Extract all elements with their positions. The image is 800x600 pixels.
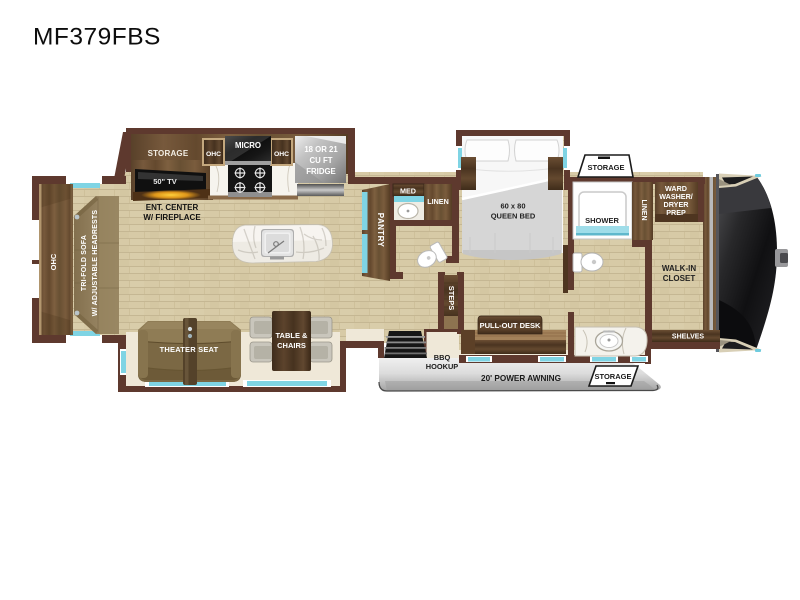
svg-text:50" TV: 50" TV xyxy=(153,177,177,186)
svg-text:BBQ: BBQ xyxy=(434,353,451,362)
svg-text:CU FT: CU FT xyxy=(310,156,333,165)
svg-text:MF379FBS: MF379FBS xyxy=(33,24,161,51)
svg-text:20' POWER AWNING: 20' POWER AWNING xyxy=(481,374,561,383)
svg-text:SHELVES: SHELVES xyxy=(672,334,704,341)
svg-text:W/ FIREPLACE: W/ FIREPLACE xyxy=(143,213,201,222)
svg-text:STORAGE: STORAGE xyxy=(588,163,625,172)
svg-text:QUEEN BED: QUEEN BED xyxy=(491,212,536,221)
svg-text:STEPS: STEPS xyxy=(447,286,456,311)
svg-text:PANTRY: PANTRY xyxy=(376,213,385,248)
svg-text:OHC: OHC xyxy=(49,253,58,270)
svg-text:LINEN: LINEN xyxy=(427,197,449,206)
svg-text:HOOKUP: HOOKUP xyxy=(426,362,459,371)
svg-text:TRI-FOLD SOFA: TRI-FOLD SOFA xyxy=(81,235,88,291)
svg-text:PREP: PREP xyxy=(666,208,686,217)
svg-text:CHAIRS: CHAIRS xyxy=(277,341,306,350)
svg-text:STORAGE: STORAGE xyxy=(595,372,632,381)
svg-text:OHC: OHC xyxy=(274,151,289,158)
svg-text:18 OR 21: 18 OR 21 xyxy=(304,145,338,154)
svg-text:STORAGE: STORAGE xyxy=(148,149,189,158)
svg-text:WALK-IN: WALK-IN xyxy=(662,264,696,273)
svg-text:CLOSET: CLOSET xyxy=(663,274,696,283)
svg-text:FRIDGE: FRIDGE xyxy=(306,167,335,176)
svg-text:60 x 80: 60 x 80 xyxy=(500,202,525,211)
svg-text:OHC: OHC xyxy=(206,151,221,158)
svg-text:THEATER SEAT: THEATER SEAT xyxy=(160,345,219,354)
svg-text:ENT. CENTER: ENT. CENTER xyxy=(146,203,199,212)
svg-text:TABLE &: TABLE & xyxy=(276,331,309,340)
svg-text:MICRO: MICRO xyxy=(235,141,261,150)
svg-text:MED: MED xyxy=(400,187,416,196)
svg-text:PULL-OUT DESK: PULL-OUT DESK xyxy=(480,321,541,330)
svg-text:LINEN: LINEN xyxy=(640,200,647,221)
svg-text:SHOWER: SHOWER xyxy=(585,216,619,225)
svg-text:W/ ADJUSTABLE HEADRESTS: W/ ADJUSTABLE HEADRESTS xyxy=(92,210,99,317)
